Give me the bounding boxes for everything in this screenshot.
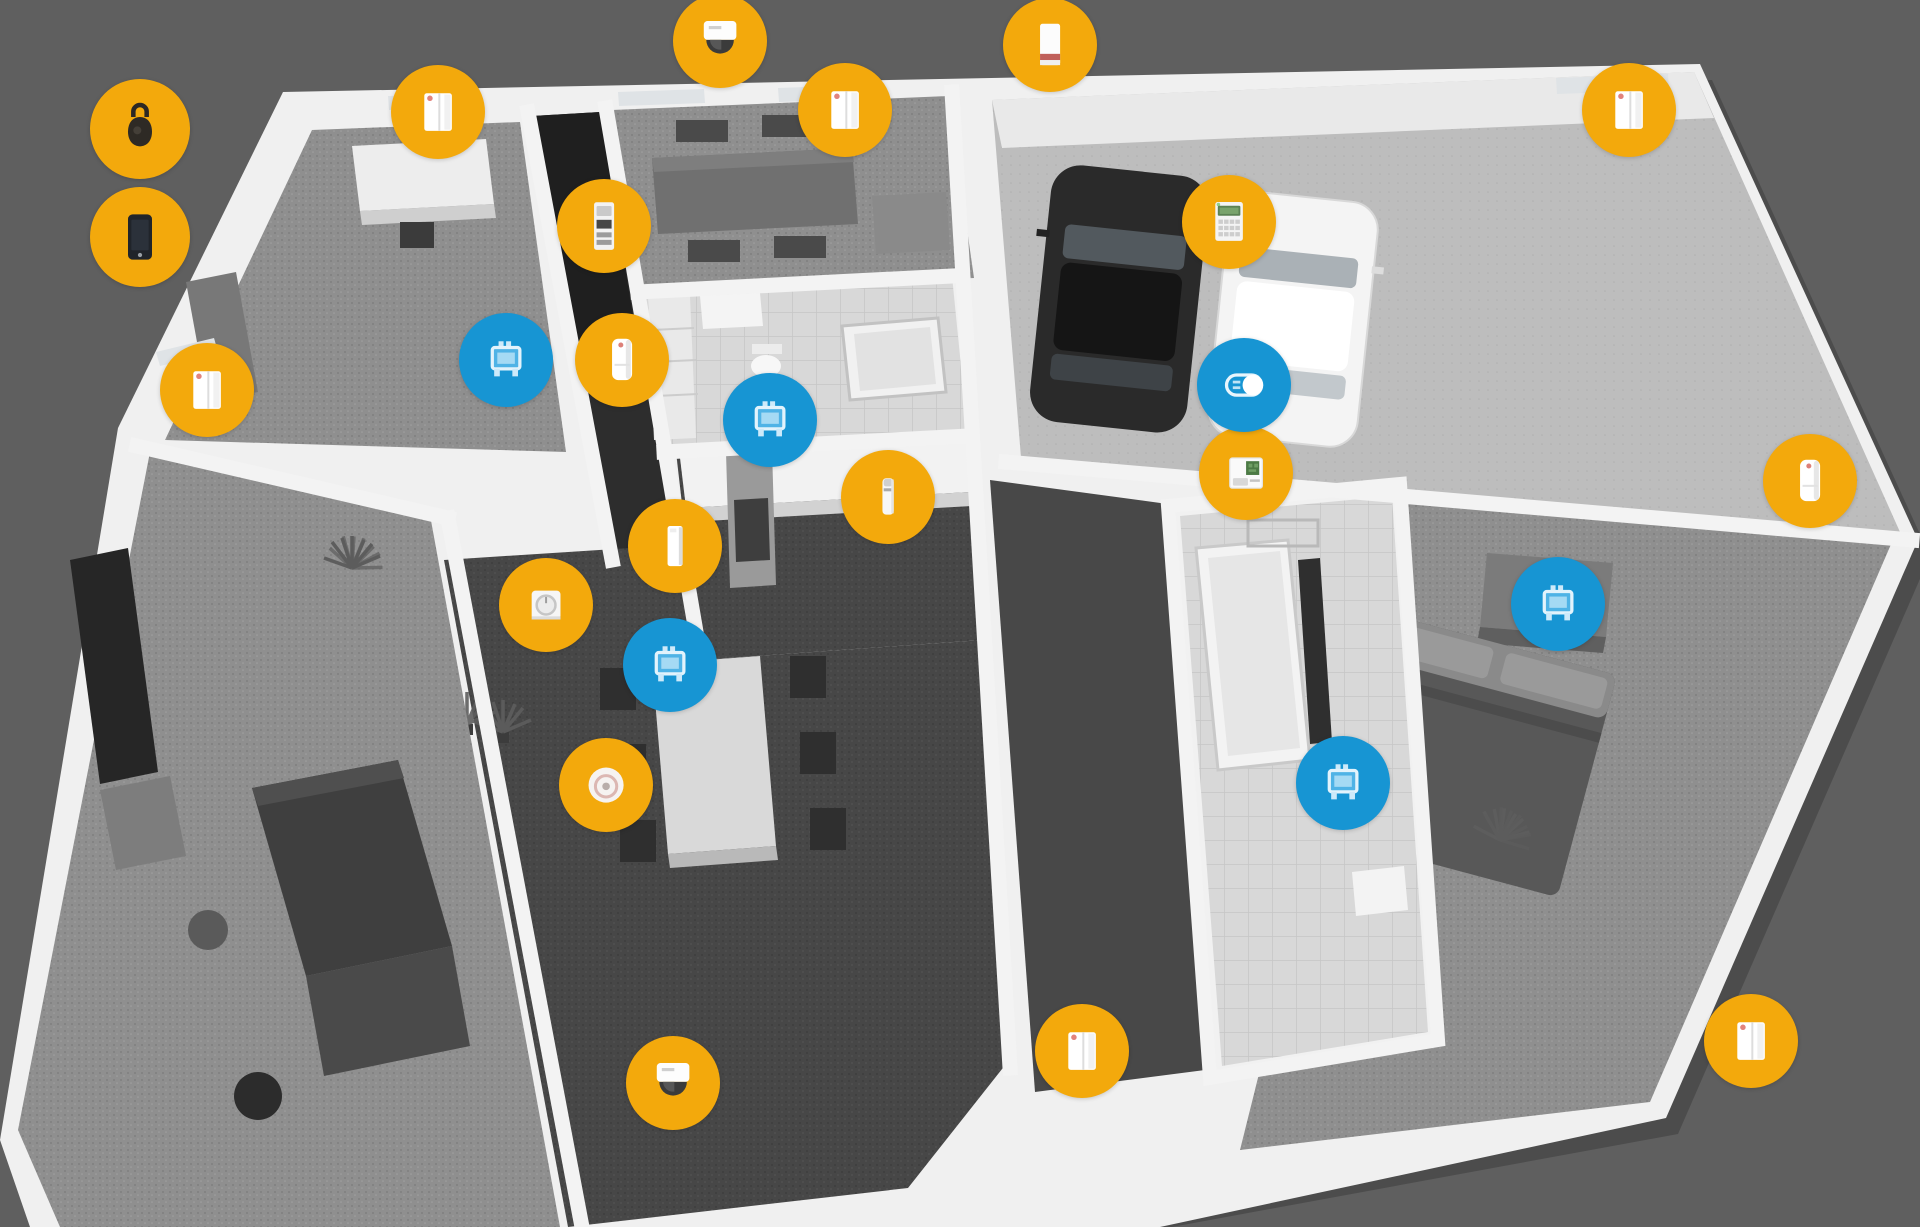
marker-radiator-thermostat[interactable] xyxy=(723,373,817,467)
door-contact-icon xyxy=(645,516,705,576)
marker-motion-detector[interactable] xyxy=(575,313,669,407)
marker-door-window-contact[interactable] xyxy=(160,343,254,437)
marker-motion-detector[interactable] xyxy=(1763,434,1857,528)
motion-detector-icon xyxy=(1780,451,1840,511)
dome-camera-icon xyxy=(690,11,750,71)
marker-smartphone[interactable] xyxy=(90,187,190,287)
radiator-valve-icon xyxy=(640,635,700,695)
lcd-keypad-icon xyxy=(1199,192,1259,252)
dome-camera-icon xyxy=(643,1053,703,1113)
door-window-sensor-icon xyxy=(1721,1011,1781,1071)
marker-door-window-contact[interactable] xyxy=(1704,994,1798,1088)
door-window-sensor-icon xyxy=(1599,80,1659,140)
marker-door-window-contact[interactable] xyxy=(798,63,892,157)
marker-dome-camera[interactable] xyxy=(626,1036,720,1130)
radiator-valve-icon xyxy=(476,330,536,390)
marker-radiator-thermostat[interactable] xyxy=(1511,557,1605,651)
marker-radiator-thermostat[interactable] xyxy=(1296,736,1390,830)
marker-wall-thermostat[interactable] xyxy=(499,558,593,652)
marker-dome-camera[interactable] xyxy=(673,0,767,88)
siren-icon xyxy=(1020,15,1080,75)
marker-keyfob-remote[interactable] xyxy=(90,79,190,179)
door-window-sensor-icon xyxy=(408,82,468,142)
door-window-sensor-icon xyxy=(1052,1021,1112,1081)
marker-smoke-detector[interactable] xyxy=(559,738,653,832)
door-window-sensor-icon xyxy=(177,360,237,420)
marker-flood-detector[interactable] xyxy=(841,450,935,544)
marker-door-window-contact[interactable] xyxy=(391,65,485,159)
smoke-detector-icon xyxy=(576,755,636,815)
motion-detector-icon xyxy=(592,330,652,390)
smart-home-floorplan-view xyxy=(0,0,1920,1227)
marker-door-contact-slim[interactable] xyxy=(628,499,722,593)
relay-switch-icon xyxy=(1214,355,1274,415)
radiator-valve-icon xyxy=(1313,753,1373,813)
control-panel-icon xyxy=(1216,443,1276,503)
marker-siren[interactable] xyxy=(1003,0,1097,92)
marker-radiator-thermostat[interactable] xyxy=(459,313,553,407)
device-marker-layer xyxy=(0,0,1920,1227)
radiator-valve-icon xyxy=(1528,574,1588,634)
access-keypad-icon xyxy=(574,196,634,256)
marker-access-keypad[interactable] xyxy=(557,179,651,273)
radiator-valve-icon xyxy=(740,390,800,450)
marker-door-window-contact[interactable] xyxy=(1582,63,1676,157)
marker-relay-switch[interactable] xyxy=(1197,338,1291,432)
marker-lcd-keypad[interactable] xyxy=(1182,175,1276,269)
marker-radiator-thermostat[interactable] xyxy=(623,618,717,712)
wall-thermostat-icon xyxy=(516,575,576,635)
door-window-sensor-icon xyxy=(815,80,875,140)
flood-detector-icon xyxy=(858,467,918,527)
marker-control-panel[interactable] xyxy=(1199,426,1293,520)
smartphone-icon xyxy=(108,205,172,269)
marker-door-window-contact[interactable] xyxy=(1035,1004,1129,1098)
keyfob-icon xyxy=(108,97,172,161)
